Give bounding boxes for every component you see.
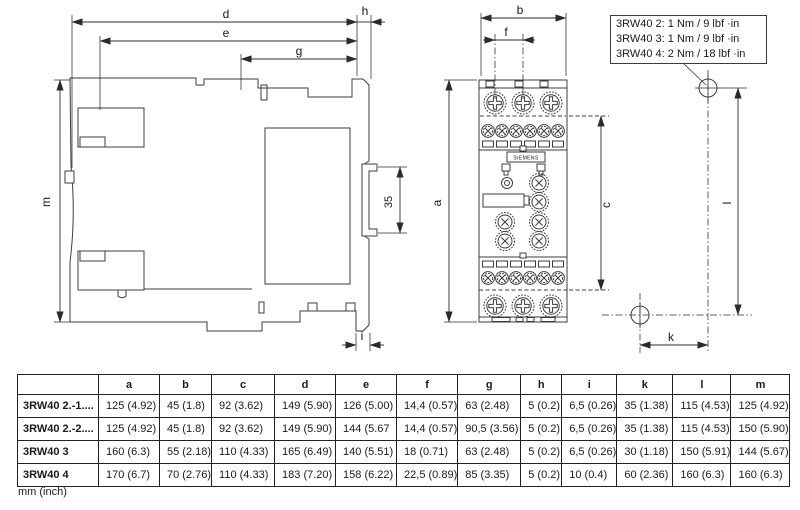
dim-cell: 110 (4.33) xyxy=(212,464,275,487)
leader-line xyxy=(683,63,706,85)
dim-h: h xyxy=(357,4,385,79)
dim-label-g: g xyxy=(296,44,303,58)
torque-spec-box: 3RW40 2: 1 Nm / 9 lbf ·in 3RW40 3: 1 Nm … xyxy=(610,15,767,64)
dim-label-k: k xyxy=(668,330,675,344)
dim-a: a xyxy=(430,80,477,322)
dim-cell: 160 (6.3) xyxy=(99,441,160,464)
dim-cell: 183 (7.20) xyxy=(275,464,336,487)
side-view xyxy=(65,78,377,331)
mounting-hole-pattern: l k xyxy=(602,63,752,353)
dim-m: m xyxy=(39,80,70,322)
row-label: 3RW40 3 xyxy=(18,441,99,464)
dim-cell: 150 (5.90) xyxy=(731,418,790,441)
col-header-d: d xyxy=(275,375,336,395)
col-header-k: k xyxy=(617,375,673,395)
units-note: mm (inch) xyxy=(18,486,67,498)
header-row: a b c d e f g h i k l m xyxy=(18,375,790,395)
col-header xyxy=(18,375,99,395)
dim-cell: 60 (2.36) xyxy=(617,464,673,487)
dim-label-c: c xyxy=(599,202,613,208)
dim-label-l: l xyxy=(720,202,734,205)
dim-cell: 5 (0.2) xyxy=(521,464,562,487)
dim-cell: 5 (0.2) xyxy=(521,441,562,464)
dim-cell: 6,5 (0.26) xyxy=(562,441,617,464)
dim-l: l xyxy=(720,88,747,315)
dim-cell: 160 (6.3) xyxy=(731,464,790,487)
dim-label-f: f xyxy=(504,25,508,39)
dim-cell: 70 (2.76) xyxy=(160,464,212,487)
dim-cell: 35 (1.38) xyxy=(617,395,673,418)
mounting-clip xyxy=(65,171,74,183)
row-label: 3RW40 4 xyxy=(18,464,99,487)
col-header-l: l xyxy=(673,375,731,395)
dim-label-b: b xyxy=(517,3,524,17)
page: d e g h m 35 i xyxy=(0,0,800,510)
dim-cell: 90,5 (3.56) xyxy=(458,418,521,441)
dim-c: c xyxy=(569,116,613,290)
dim-cell: 55 (2.18) xyxy=(160,441,212,464)
dim-cell: 92 (3.62) xyxy=(212,418,275,441)
dim-cell: 6,5 (0.26) xyxy=(562,395,617,418)
dim-cell: 45 (1.8) xyxy=(160,418,212,441)
col-header-b: b xyxy=(160,375,212,395)
col-header-a: a xyxy=(99,375,160,395)
dim-cell: 110 (4.33) xyxy=(212,441,275,464)
table-row: 3RW40 3 160 (6.3) 55 (2.18) 110 (4.33) 1… xyxy=(18,441,790,464)
col-header-g: g xyxy=(458,375,521,395)
dim-label-35: 35 xyxy=(383,196,395,208)
dim-cell: 170 (6.7) xyxy=(99,464,160,487)
col-header-f: f xyxy=(397,375,458,395)
dim-label-a: a xyxy=(430,199,444,206)
dim-cell: 18 (0.71) xyxy=(397,441,458,464)
torque-spec-line: 3RW40 3: 1 Nm / 9 lbf ·in xyxy=(616,32,766,47)
dim-rail-35: 35 xyxy=(378,167,407,233)
terminal-block-top xyxy=(78,108,144,147)
dim-cell: 5 (0.2) xyxy=(521,418,562,441)
dim-cell: 6,5 (0.26) xyxy=(562,418,617,441)
dim-label-h: h xyxy=(362,4,369,18)
din-rail-profile xyxy=(362,164,377,236)
dim-cell: 125 (4.92) xyxy=(99,395,160,418)
dim-cell: 115 (4.53) xyxy=(673,418,731,441)
col-header-i: i xyxy=(562,375,617,395)
dim-cell: 14,4 (0.57) xyxy=(397,395,458,418)
dim-cell: 85 (3.35) xyxy=(458,464,521,487)
dim-cell: 125 (4.92) xyxy=(731,395,790,418)
dim-cell: 149 (5.90) xyxy=(275,418,336,441)
row-label: 3RW40 2.-1.... xyxy=(18,395,99,418)
col-header-e: e xyxy=(336,375,397,395)
dim-cell: 140 (5.51) xyxy=(336,441,397,464)
dim-cell: 160 (6.3) xyxy=(673,464,731,487)
col-header-h: h xyxy=(521,375,562,395)
dim-cell: 125 (4.92) xyxy=(99,418,160,441)
dim-cell: 115 (4.53) xyxy=(673,395,731,418)
brand-label: SIEMENS xyxy=(513,156,539,162)
dim-cell: 30 (1.18) xyxy=(617,441,673,464)
torque-spec-line: 3RW40 2: 1 Nm / 9 lbf ·in xyxy=(616,17,766,32)
dim-k: k xyxy=(640,330,708,345)
dim-label-d: d xyxy=(223,7,230,21)
dim-cell: 126 (5.00) xyxy=(336,395,397,418)
dim-cell: 149 (5.90) xyxy=(275,395,336,418)
dim-b: b xyxy=(481,3,566,76)
front-view: SIEMENS xyxy=(479,80,567,322)
dim-cell: 92 (3.62) xyxy=(212,395,275,418)
table-row: 3RW40 2.-1.... 125 (4.92) 45 (1.8) 92 (3… xyxy=(18,395,790,418)
dim-cell: 144 (5.67) xyxy=(731,441,790,464)
dim-cell: 150 (5.91) xyxy=(673,441,731,464)
dim-cell: 10 (0.4) xyxy=(562,464,617,487)
dim-cell: 45 (1.8) xyxy=(160,395,212,418)
dim-cell: 5 (0.2) xyxy=(521,395,562,418)
col-header-c: c xyxy=(212,375,275,395)
dim-cell: 35 (1.38) xyxy=(617,418,673,441)
dim-cell: 144 (5.67 xyxy=(336,418,397,441)
table-row: 3RW40 2.-2.... 125 (4.92) 45 (1.8) 92 (3… xyxy=(18,418,790,441)
dim-cell: 63 (2.48) xyxy=(458,395,521,418)
row-label: 3RW40 2.-2.... xyxy=(18,418,99,441)
dim-label-i: i xyxy=(361,329,364,343)
dim-i: i xyxy=(342,329,384,351)
terminal-block-bottom xyxy=(78,251,144,290)
dim-cell: 63 (2.48) xyxy=(458,441,521,464)
dim-cell: 14,4 (0.57) xyxy=(397,418,458,441)
dimensions-table: a b c d e f g h i k l m 3RW40 2.-1.... 1… xyxy=(17,374,790,487)
dim-cell: 165 (6.49) xyxy=(275,441,336,464)
torque-spec-line: 3RW40 4: 2 Nm / 18 lbf ·in xyxy=(616,47,766,62)
dim-label-m: m xyxy=(39,197,53,207)
dim-cell: 158 (6.22) xyxy=(336,464,397,487)
col-header-m: m xyxy=(731,375,790,395)
dim-cell: 22,5 (0.89) xyxy=(397,464,458,487)
dim-label-e: e xyxy=(223,26,230,40)
table-row: 3RW40 4 170 (6.7) 70 (2.76) 110 (4.33) 1… xyxy=(18,464,790,487)
